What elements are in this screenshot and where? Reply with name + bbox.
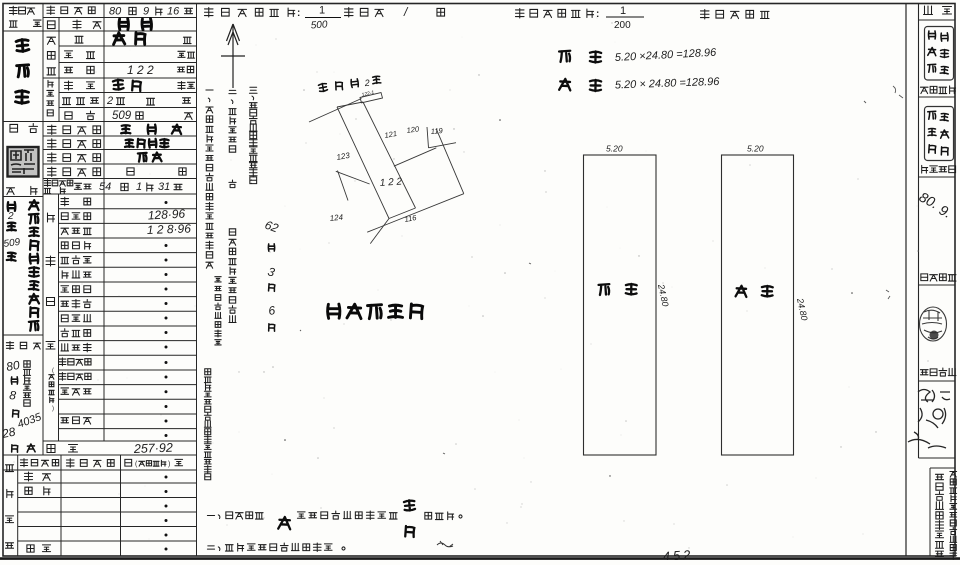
svg-text::: : <box>596 9 599 20</box>
svg-text::: : <box>250 177 253 186</box>
svg-text:200: 200 <box>614 20 631 31</box>
svg-text:1 2 2: 1 2 2 <box>379 176 402 189</box>
svg-text:119: 119 <box>430 126 444 136</box>
svg-text:5.20: 5.20 <box>606 144 623 154</box>
svg-text:1: 1 <box>136 181 142 193</box>
svg-text:2: 2 <box>363 78 370 89</box>
svg-text:80: 80 <box>5 358 21 374</box>
svg-text:257·92: 257·92 <box>133 441 173 456</box>
svg-text:1: 1 <box>319 5 325 17</box>
svg-text:1 2 2: 1 2 2 <box>127 63 154 77</box>
svg-text:124: 124 <box>329 213 344 223</box>
svg-text:1 2 8·96: 1 2 8·96 <box>147 221 192 237</box>
svg-text:120: 120 <box>406 124 420 135</box>
svg-text:54: 54 <box>99 181 111 193</box>
svg-text:80: 80 <box>109 6 122 18</box>
svg-text:2: 2 <box>106 95 113 107</box>
svg-text:16: 16 <box>167 6 180 18</box>
svg-text:): ) <box>52 406 54 412</box>
svg-text::: : <box>297 8 300 19</box>
svg-text:128·96: 128·96 <box>147 207 185 223</box>
svg-text:9: 9 <box>143 6 149 18</box>
svg-text:5.20: 5.20 <box>747 144 764 154</box>
svg-text:500: 500 <box>310 19 328 31</box>
svg-text:452: 452 <box>662 547 694 560</box>
svg-text:31: 31 <box>158 181 170 193</box>
svg-text:2: 2 <box>7 211 14 222</box>
svg-text:509: 509 <box>112 110 132 122</box>
svg-text:(: ( <box>52 368 54 374</box>
svg-text:): ) <box>168 461 170 468</box>
svg-text:1: 1 <box>620 5 626 17</box>
